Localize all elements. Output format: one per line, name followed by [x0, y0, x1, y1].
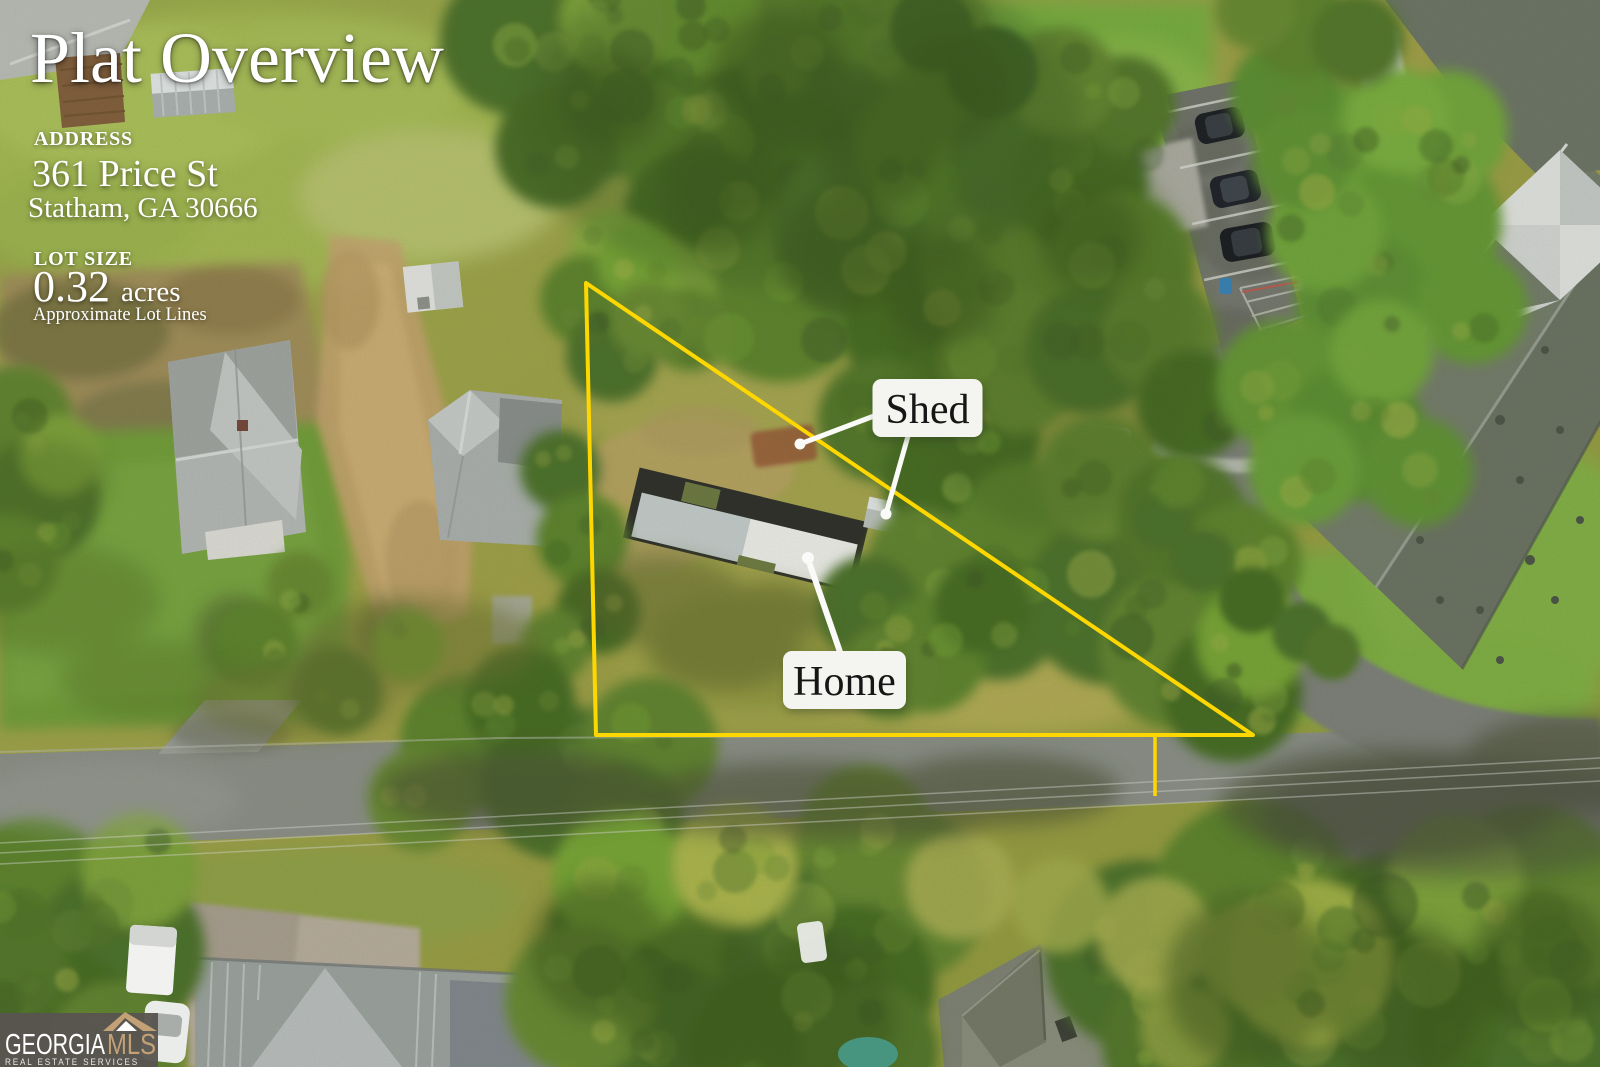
svg-text:REAL ESTATE SERVICES: REAL ESTATE SERVICES [5, 1057, 139, 1067]
svg-text:Shed: Shed [886, 387, 970, 433]
svg-text:Home: Home [793, 659, 896, 705]
